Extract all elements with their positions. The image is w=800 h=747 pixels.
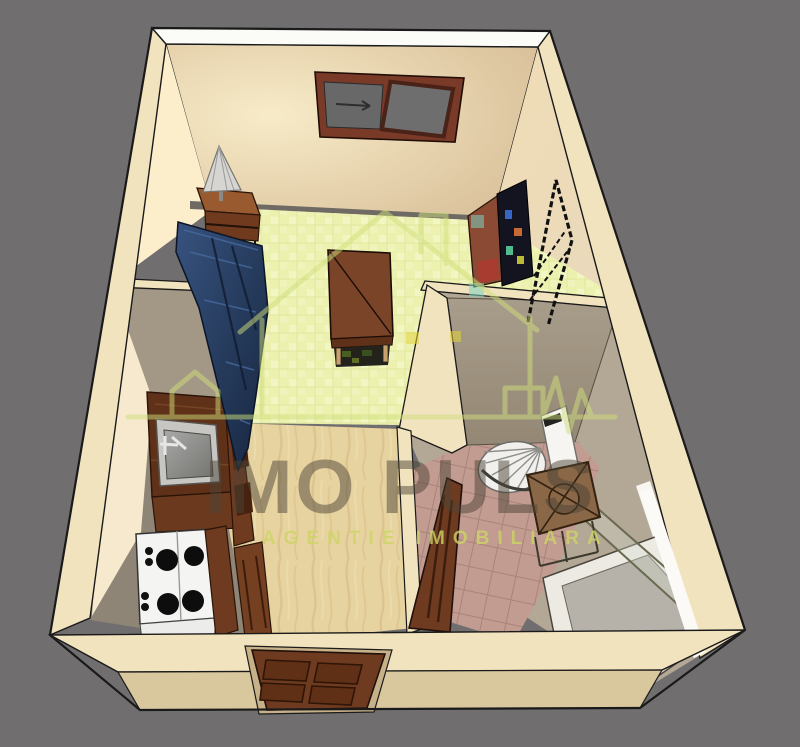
stove-knob	[141, 592, 149, 600]
coffee-table	[328, 250, 393, 367]
watermark-title: IMO PULS	[205, 445, 596, 530]
door-panel	[309, 686, 355, 705]
entry-door	[245, 646, 392, 714]
door-panel	[314, 663, 362, 684]
watermark-subtitle: AGENTIE IMOBILIARA	[262, 528, 609, 549]
front-wall-face	[118, 670, 662, 710]
floorplan-render: IMO PULS AGENTIE IMOBILIARA	[0, 0, 800, 747]
tv-stand-accent	[477, 258, 499, 283]
burner	[157, 593, 179, 615]
stove-knob	[141, 603, 149, 611]
burner	[182, 590, 204, 612]
stove-knob	[145, 547, 153, 555]
sliding-window	[315, 72, 464, 142]
stove-knob	[145, 558, 153, 566]
burner	[184, 546, 204, 566]
table-leg	[383, 345, 388, 362]
window-pane-right	[382, 81, 454, 137]
burner	[156, 549, 178, 571]
floorplan-canvas: IMO PULS AGENTIE IMOBILIARA	[0, 0, 800, 747]
stove	[136, 529, 216, 648]
table-leg	[336, 348, 341, 365]
door-panel	[263, 660, 310, 681]
front-wall-band	[50, 630, 745, 672]
door-panel	[260, 683, 305, 702]
